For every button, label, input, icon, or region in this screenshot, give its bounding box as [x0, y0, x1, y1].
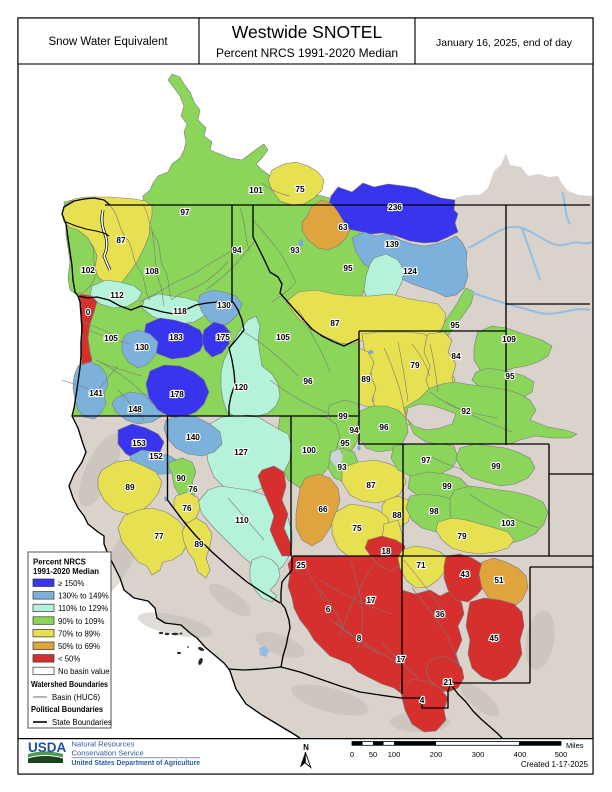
svg-text:Political Boundaries: Political Boundaries [31, 705, 104, 714]
svg-text:152: 152 [149, 451, 163, 461]
svg-text:118: 118 [173, 306, 187, 316]
svg-text:21: 21 [443, 677, 453, 687]
svg-text:99: 99 [491, 461, 501, 471]
svg-text:110% to 129%: 110% to 129% [58, 604, 108, 613]
svg-text:140: 140 [186, 432, 200, 442]
svg-text:87: 87 [366, 480, 376, 490]
svg-text:State Boundaries: State Boundaries [52, 718, 112, 727]
svg-text:103: 103 [501, 518, 515, 528]
svg-text:17: 17 [396, 654, 406, 664]
svg-text:90: 90 [176, 473, 186, 483]
svg-text:94: 94 [349, 425, 359, 435]
svg-text:95: 95 [343, 263, 353, 273]
svg-text:175: 175 [216, 332, 230, 342]
svg-text:100: 100 [388, 750, 401, 759]
svg-text:105: 105 [276, 332, 290, 342]
svg-text:101: 101 [249, 185, 263, 195]
svg-text:97: 97 [180, 207, 190, 217]
svg-text:97: 97 [421, 455, 431, 465]
svg-text:4: 4 [420, 695, 425, 705]
svg-text:108: 108 [145, 266, 159, 276]
svg-text:95: 95 [450, 320, 460, 330]
svg-text:95: 95 [505, 371, 515, 381]
svg-text:Conservation Service: Conservation Service [72, 749, 144, 758]
svg-text:130% to 149%: 130% to 149% [58, 592, 109, 601]
svg-text:100: 100 [302, 445, 316, 455]
svg-text:0: 0 [350, 750, 354, 759]
svg-text:94: 94 [232, 245, 242, 255]
svg-text:300: 300 [472, 750, 485, 759]
svg-text:25: 25 [296, 560, 306, 570]
svg-text:130: 130 [217, 300, 231, 310]
svg-text:Created 1-17-2025: Created 1-17-2025 [521, 760, 589, 769]
svg-text:79: 79 [410, 360, 420, 370]
svg-text:127: 127 [234, 447, 248, 457]
svg-text:17: 17 [366, 595, 376, 605]
svg-text:96: 96 [303, 376, 313, 386]
svg-text:18: 18 [381, 546, 391, 556]
svg-text:75: 75 [352, 523, 362, 533]
svg-text:92: 92 [461, 406, 471, 416]
svg-text:89: 89 [361, 374, 371, 384]
svg-text:112: 112 [110, 290, 124, 300]
svg-text:≥ 150%: ≥ 150% [58, 579, 84, 588]
svg-text:50% to 69%: 50% to 69% [58, 642, 100, 651]
svg-text:Westwide SNOTEL: Westwide SNOTEL [232, 22, 383, 42]
svg-text:93: 93 [337, 462, 347, 472]
svg-text:236: 236 [388, 202, 402, 212]
svg-text:89: 89 [125, 482, 135, 492]
svg-text:87: 87 [116, 235, 126, 245]
svg-text:139: 139 [385, 239, 399, 249]
svg-text:51: 51 [494, 575, 504, 585]
svg-text:141: 141 [89, 388, 103, 398]
svg-text:66: 66 [318, 504, 328, 514]
svg-text:183: 183 [169, 332, 183, 342]
svg-text:1991-2020 Median: 1991-2020 Median [33, 567, 99, 576]
svg-text:6: 6 [326, 604, 331, 614]
svg-text:Miles: Miles [566, 741, 584, 750]
svg-text:< 50%: < 50% [58, 655, 80, 664]
svg-text:77: 77 [154, 531, 164, 541]
svg-text:Percent NRCS: Percent NRCS [33, 558, 86, 567]
svg-text:95: 95 [340, 438, 350, 448]
svg-text:84: 84 [451, 351, 461, 361]
svg-text:January 16, 2025, end of day: January 16, 2025, end of day [436, 37, 573, 49]
svg-text:79: 79 [457, 531, 467, 541]
svg-text:75: 75 [295, 184, 305, 194]
svg-text:43: 43 [460, 569, 470, 579]
svg-text:109: 109 [502, 334, 516, 344]
svg-text:8: 8 [357, 633, 362, 643]
svg-text:400: 400 [514, 750, 527, 759]
svg-text:89: 89 [194, 539, 204, 549]
svg-text:99: 99 [442, 481, 452, 491]
svg-text:96: 96 [379, 422, 389, 432]
svg-text:88: 88 [392, 510, 402, 520]
svg-text:200: 200 [430, 750, 443, 759]
svg-text:Percent NRCS 1991-2020 Median: Percent NRCS 1991-2020 Median [216, 46, 398, 60]
svg-text:102: 102 [81, 265, 95, 275]
svg-text:87: 87 [330, 318, 340, 328]
svg-text:36: 36 [435, 609, 445, 619]
svg-text:93: 93 [290, 245, 300, 255]
svg-text:0: 0 [86, 307, 91, 317]
svg-text:70% to 89%: 70% to 89% [58, 629, 100, 638]
svg-text:76: 76 [188, 484, 198, 494]
svg-text:178: 178 [170, 389, 184, 399]
svg-text:N: N [303, 743, 309, 752]
svg-text:90% to 109%: 90% to 109% [58, 617, 104, 626]
svg-text:500: 500 [555, 750, 568, 759]
svg-text:Natural Resources: Natural Resources [72, 740, 135, 749]
svg-text:148: 148 [128, 404, 142, 414]
svg-text:98: 98 [429, 506, 439, 516]
svg-text:No basin value: No basin value [58, 667, 110, 676]
svg-text:63: 63 [338, 222, 348, 232]
svg-text:120: 120 [234, 382, 248, 392]
svg-text:50: 50 [369, 750, 377, 759]
svg-text:99: 99 [338, 411, 348, 421]
svg-text:45: 45 [489, 633, 499, 643]
svg-text:130: 130 [135, 342, 149, 352]
svg-text:Basin (HUC6): Basin (HUC6) [52, 693, 100, 702]
svg-text:124: 124 [403, 266, 417, 276]
svg-text:110: 110 [235, 515, 249, 525]
svg-text:Snow Water Equivalent: Snow Water Equivalent [48, 36, 168, 48]
svg-text:United States Department of Ag: United States Department of Agriculture [72, 758, 201, 767]
svg-text:153: 153 [132, 438, 146, 448]
svg-text:105: 105 [104, 333, 118, 343]
svg-text:76: 76 [182, 503, 192, 513]
svg-text:Watershed Boundaries: Watershed Boundaries [31, 680, 109, 689]
svg-text:71: 71 [416, 560, 426, 570]
